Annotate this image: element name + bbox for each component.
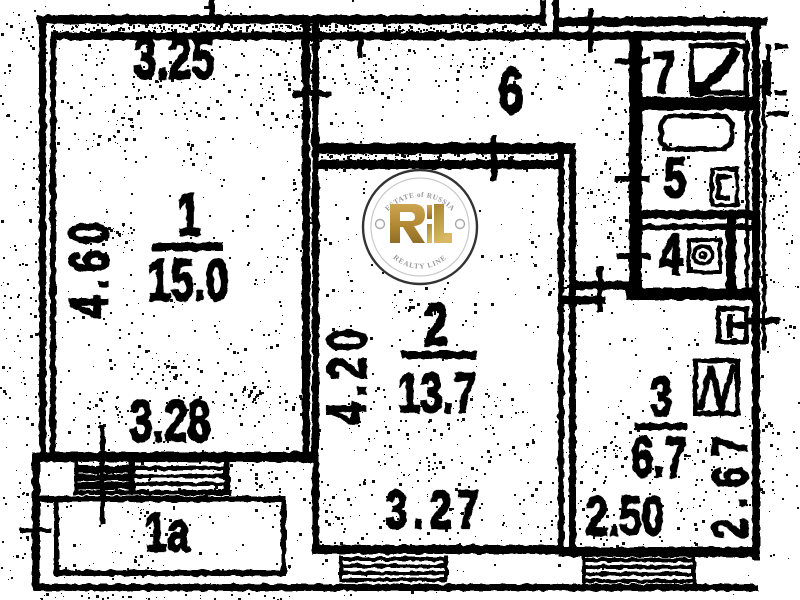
svg-text:2.67: 2.67 [703, 425, 758, 538]
svg-text:2: 2 [424, 292, 448, 359]
svg-text:7: 7 [652, 39, 675, 104]
svg-text:3.27: 3.27 [386, 479, 485, 540]
svg-text:1: 1 [177, 182, 201, 249]
svg-text:6: 6 [498, 56, 524, 127]
svg-text:4.60: 4.60 [59, 216, 121, 317]
svg-text:3.28: 3.28 [129, 388, 210, 453]
svg-text:4.20: 4.20 [317, 323, 379, 424]
svg-text:3: 3 [650, 367, 672, 429]
svg-text:6.7: 6.7 [631, 427, 687, 489]
svg-text:13.7: 13.7 [398, 363, 476, 425]
svg-text:3.25: 3.25 [133, 25, 214, 90]
svg-text:15.0: 15.0 [147, 247, 228, 312]
svg-text:5: 5 [664, 148, 686, 210]
svg-text:1a: 1a [145, 502, 191, 564]
svg-text:2.50: 2.50 [586, 486, 664, 548]
svg-text:4: 4 [659, 221, 682, 286]
